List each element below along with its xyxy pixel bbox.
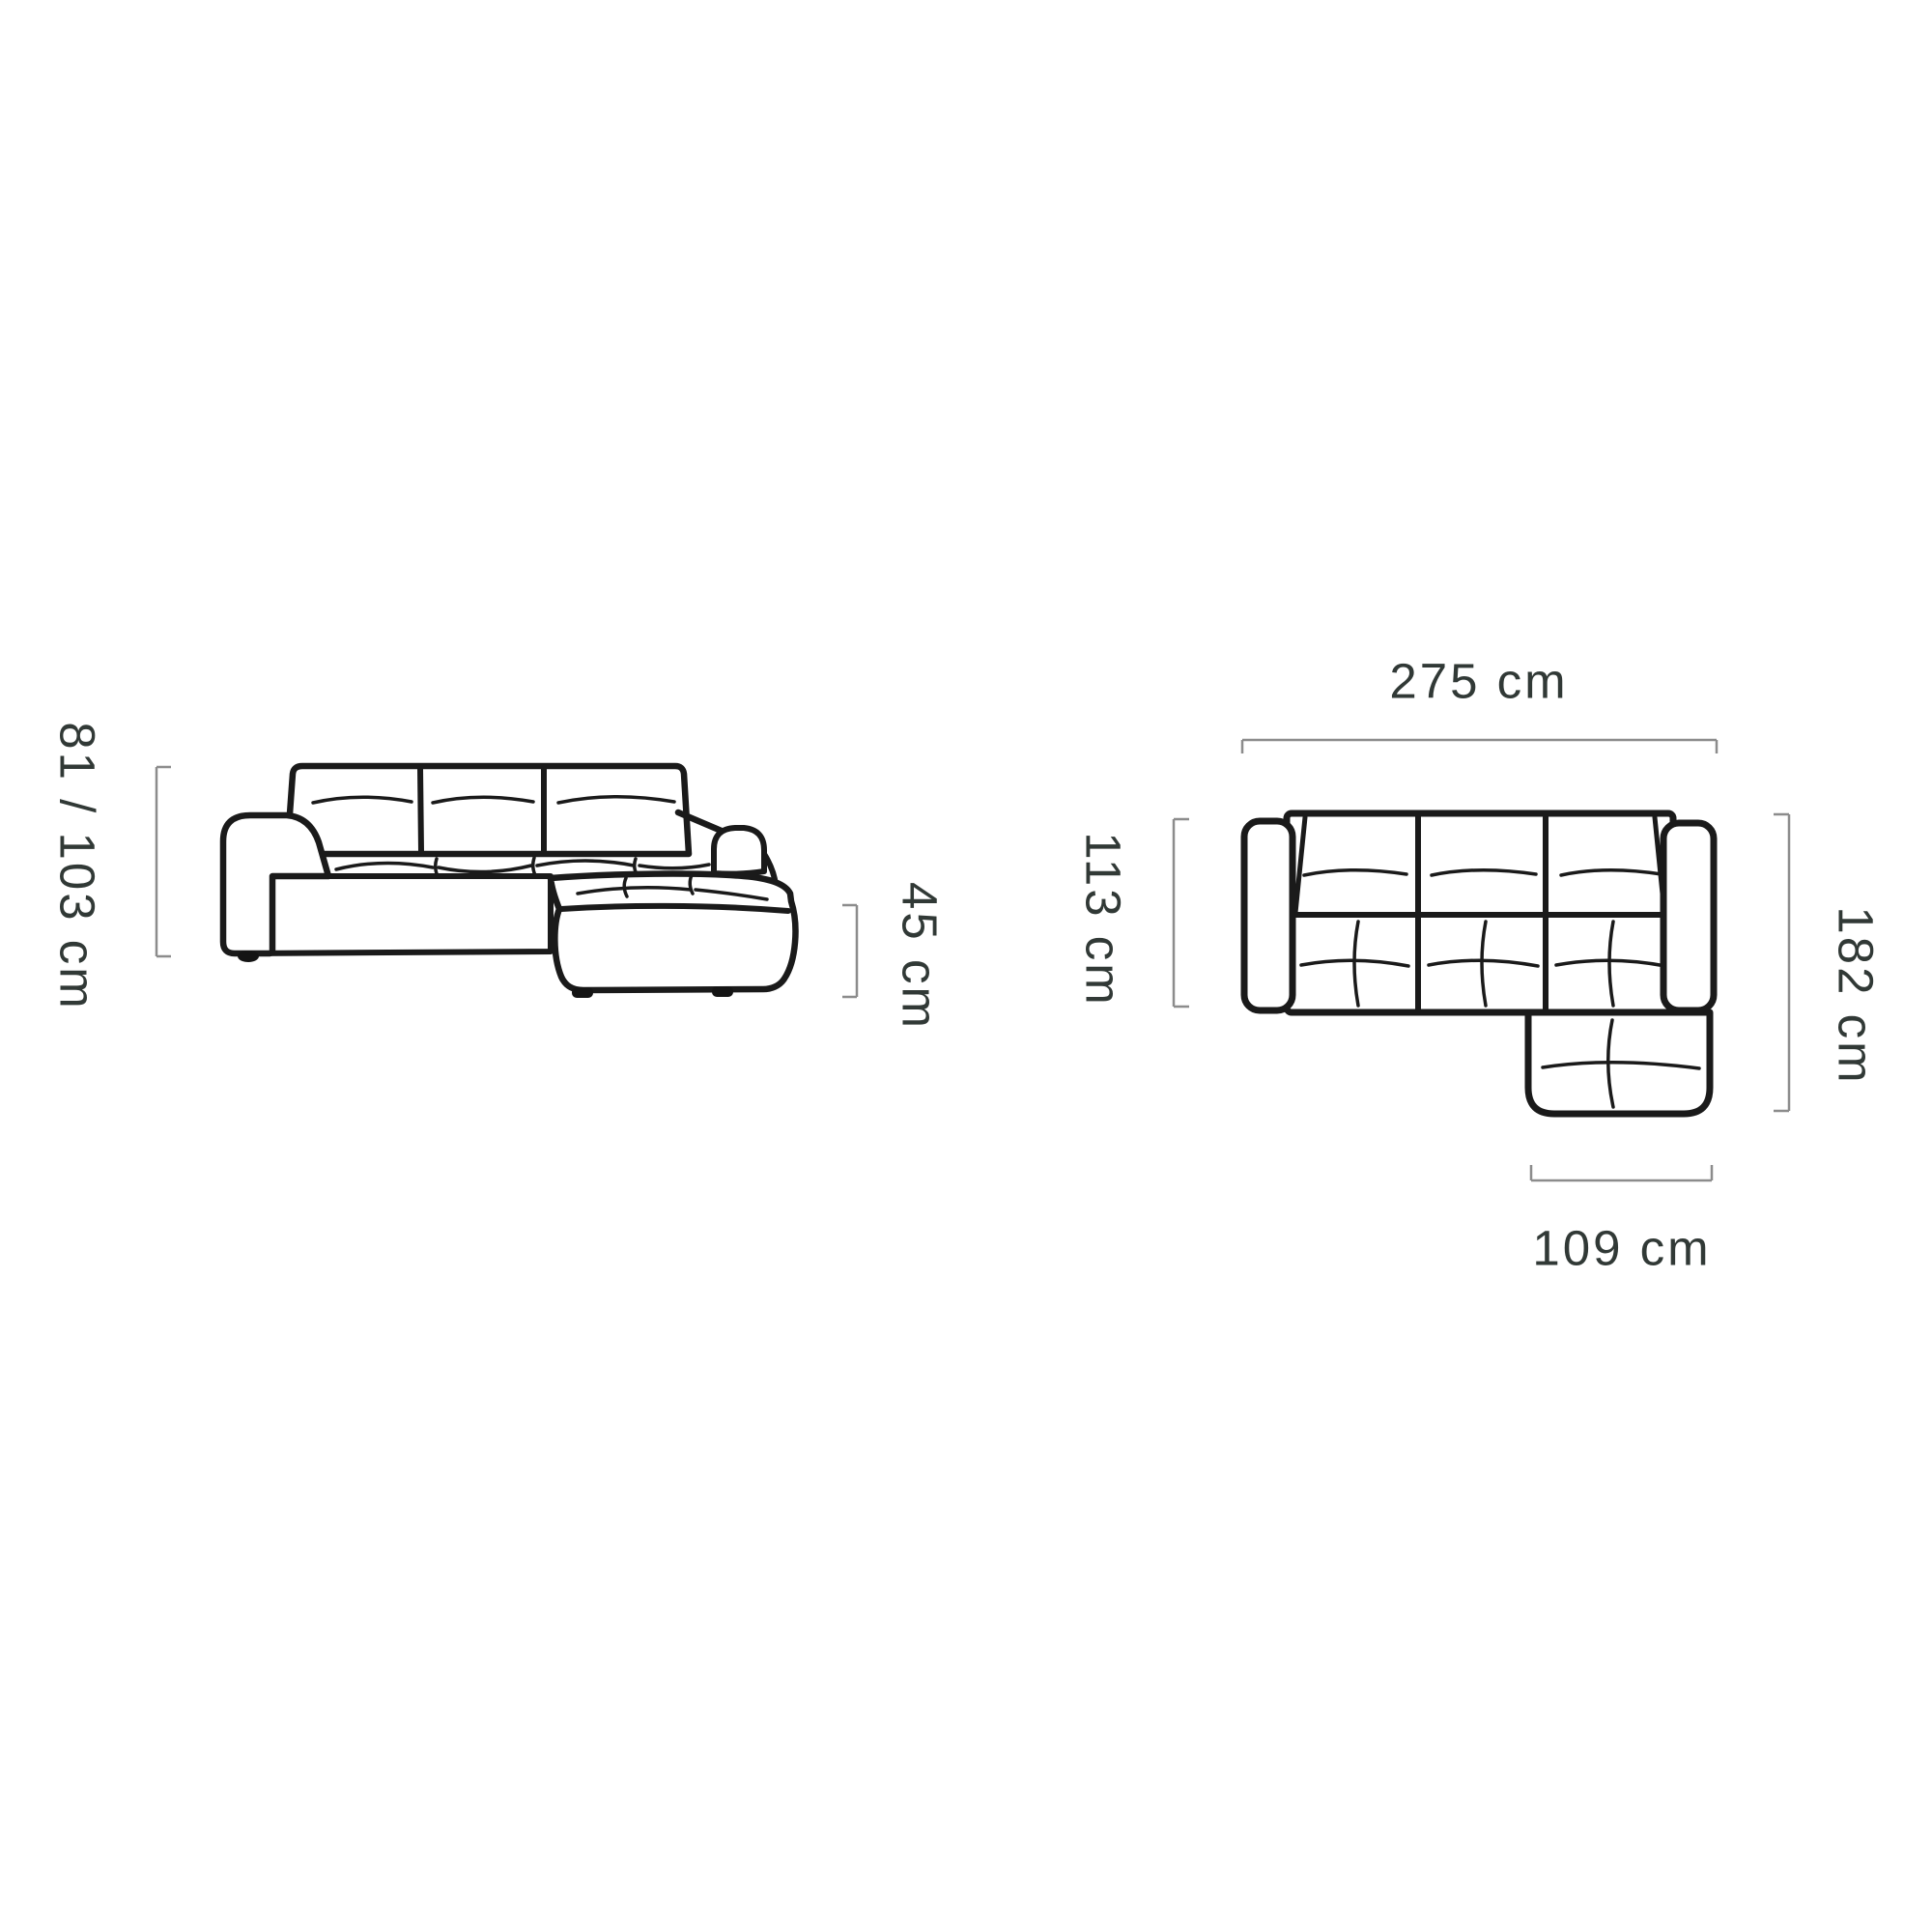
top-view-drawing <box>1174 740 1789 1180</box>
front-seat-height-bracket <box>842 905 857 997</box>
top-left-arm <box>1244 821 1293 1010</box>
top-chaise-width-bracket <box>1531 1165 1712 1180</box>
top-total-depth-bracket <box>1774 814 1789 1111</box>
front-seat-height-label: 45 cm <box>892 882 949 1031</box>
front-view-drawing <box>156 766 857 998</box>
front-chaise <box>551 874 795 990</box>
top-chaise <box>1528 1012 1710 1114</box>
top-total-depth-label: 182 cm <box>1828 906 1885 1085</box>
top-depth-label: 113 cm <box>1075 832 1132 1007</box>
front-height-bracket <box>156 767 171 956</box>
front-height-label: 81 / 103 cm <box>49 722 106 1010</box>
top-depth-bracket <box>1174 819 1189 1007</box>
sofa-dimension-diagram: 81 / 103 cm 45 cm 275 cm 113 cm 182 cm 1… <box>0 0 1932 1932</box>
top-right-arm <box>1663 823 1714 1010</box>
front-left-foot <box>238 951 259 962</box>
sofa-line-art <box>0 0 1932 1932</box>
top-width-bracket <box>1242 740 1717 753</box>
top-width-label: 275 cm <box>1389 653 1568 710</box>
top-chaise-width-label: 109 cm <box>1532 1220 1711 1277</box>
front-chaise-foot-left <box>572 987 593 998</box>
front-chaise-foot-right <box>712 986 733 997</box>
front-backrest <box>287 766 689 854</box>
